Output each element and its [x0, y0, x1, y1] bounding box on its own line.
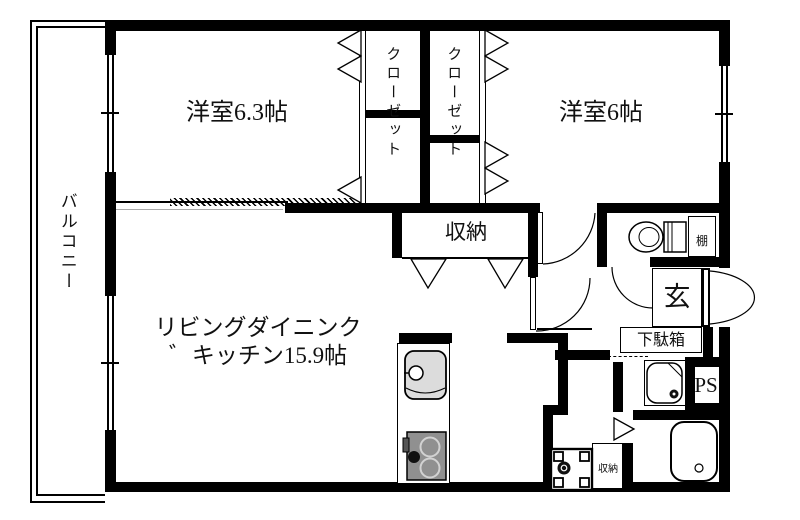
bedroom1-label: 洋室6.3帖	[152, 99, 322, 128]
storage-label: 収納	[410, 220, 522, 246]
entrance-label: 玄	[652, 281, 702, 314]
ldk-label: リビングダイニンク ゛キッチン15.9帖	[118, 314, 398, 370]
closet2-label: クローゼット	[444, 46, 462, 160]
balcony-label: バルコニー	[56, 192, 77, 292]
folding-door-icon	[485, 56, 508, 82]
toilet-tank-icon	[664, 222, 686, 252]
folding-door-icon	[338, 30, 361, 56]
bathtub-drain-icon	[695, 464, 703, 472]
folding-door-icon	[485, 168, 508, 194]
small-storage-label: 収納	[593, 464, 623, 476]
bedroom2-door-arc	[543, 213, 595, 264]
washbasin-faucet-dot	[673, 393, 676, 396]
toilet-bowl-icon	[629, 222, 663, 252]
shoe-cabinet-label: 下駄箱	[620, 331, 702, 351]
pan-corner	[554, 452, 563, 461]
folding-door-icon	[485, 30, 508, 56]
stove-knob-icon	[408, 451, 420, 463]
bathtub-icon	[671, 422, 717, 481]
bedroom2-label: 洋室6帖	[521, 99, 681, 128]
pan-corner	[580, 478, 589, 487]
pan-drain-icon	[558, 462, 571, 475]
pipe-space-label: PS	[686, 373, 726, 399]
ldk-label-line1: リビングダイニンク	[118, 314, 398, 342]
pan-corner	[580, 452, 589, 461]
entrance-door-arc	[710, 271, 754, 324]
bathroom-folding-door-icon	[614, 418, 634, 440]
storage-folding-door-icon	[411, 259, 446, 288]
stove-handle	[403, 438, 409, 452]
toilet-door-arc	[612, 267, 653, 308]
folding-door-icon	[485, 142, 508, 168]
closet1-label: クローゼット	[383, 46, 401, 160]
ldk-label-line2: ゛キッチン15.9帖	[118, 342, 398, 370]
sink-faucet-icon	[409, 366, 423, 380]
washroom-door-arc	[536, 278, 590, 331]
folding-door-icon	[338, 56, 361, 82]
storage-folding-door-icon	[488, 259, 523, 288]
folding-door-icon	[338, 177, 361, 203]
shelf-label: 棚	[689, 234, 715, 249]
pan-corner	[554, 478, 563, 487]
floorplan-canvas: バルコニー 洋室6.3帖 洋室6帖 クローゼット クローゼット 収納 リビングダ…	[0, 0, 800, 520]
